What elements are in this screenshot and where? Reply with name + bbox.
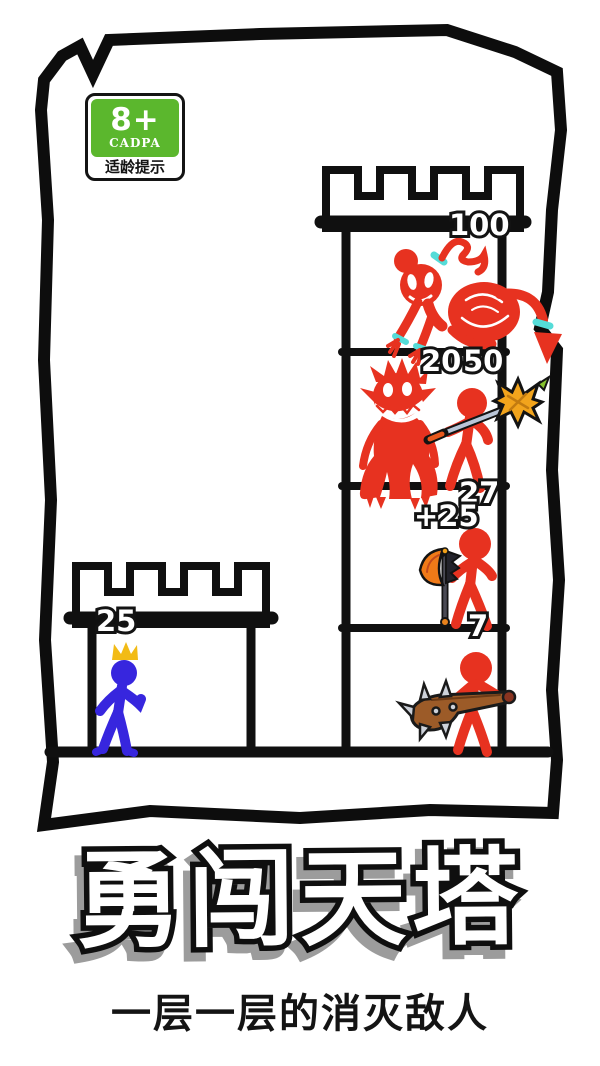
bonus-label-floor2: +25 <box>414 502 479 531</box>
game-title-text: 勇闯天塔 <box>0 833 600 965</box>
age-rating-badge-green-panel: 8+ CADPA <box>91 99 179 157</box>
player-tower <box>70 566 272 750</box>
hp-label-player-tower: 25 <box>96 607 136 636</box>
hp-label-floor-top: 100 <box>449 211 510 240</box>
furry-monster-figure <box>360 358 438 510</box>
game-subtitle: 一层一层的消灭敌人 <box>0 992 600 1036</box>
hp-label-floor3-left: 20 <box>421 347 461 376</box>
age-rating-caption: 适龄提示 <box>91 157 179 177</box>
hp-label-floor1: 7 <box>468 612 488 641</box>
crown-icon <box>112 642 138 660</box>
game-title: 勇闯天塔 勇闯天塔 <box>0 836 600 981</box>
age-rating-organization: CADPA <box>109 136 161 150</box>
age-rating-badge: 8+ CADPA 适龄提示 <box>85 93 185 181</box>
hp-label-floor3-right: 50 <box>463 347 503 376</box>
age-rating-value: 8+ <box>110 105 160 136</box>
game-ad-screenshot: 100 20 50 27 +25 7 25 8+ CADPA 适龄提示 勇闯天塔… <box>0 0 600 1066</box>
mace-stickman-figure <box>448 388 488 488</box>
blue-king-figure <box>96 642 141 753</box>
